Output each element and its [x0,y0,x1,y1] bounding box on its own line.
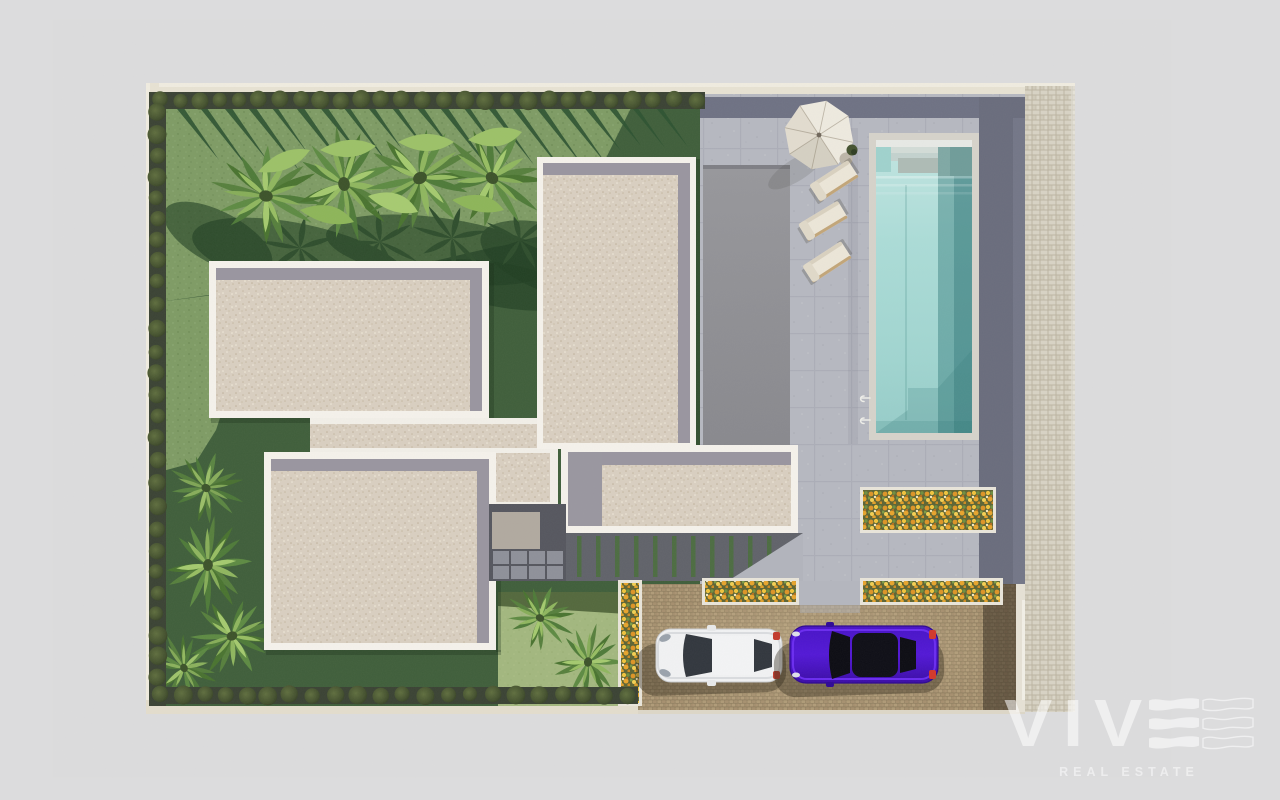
svg-text:REAL ESTATE: REAL ESTATE [1059,765,1199,779]
svg-text:VIV: VIV [1004,685,1153,760]
